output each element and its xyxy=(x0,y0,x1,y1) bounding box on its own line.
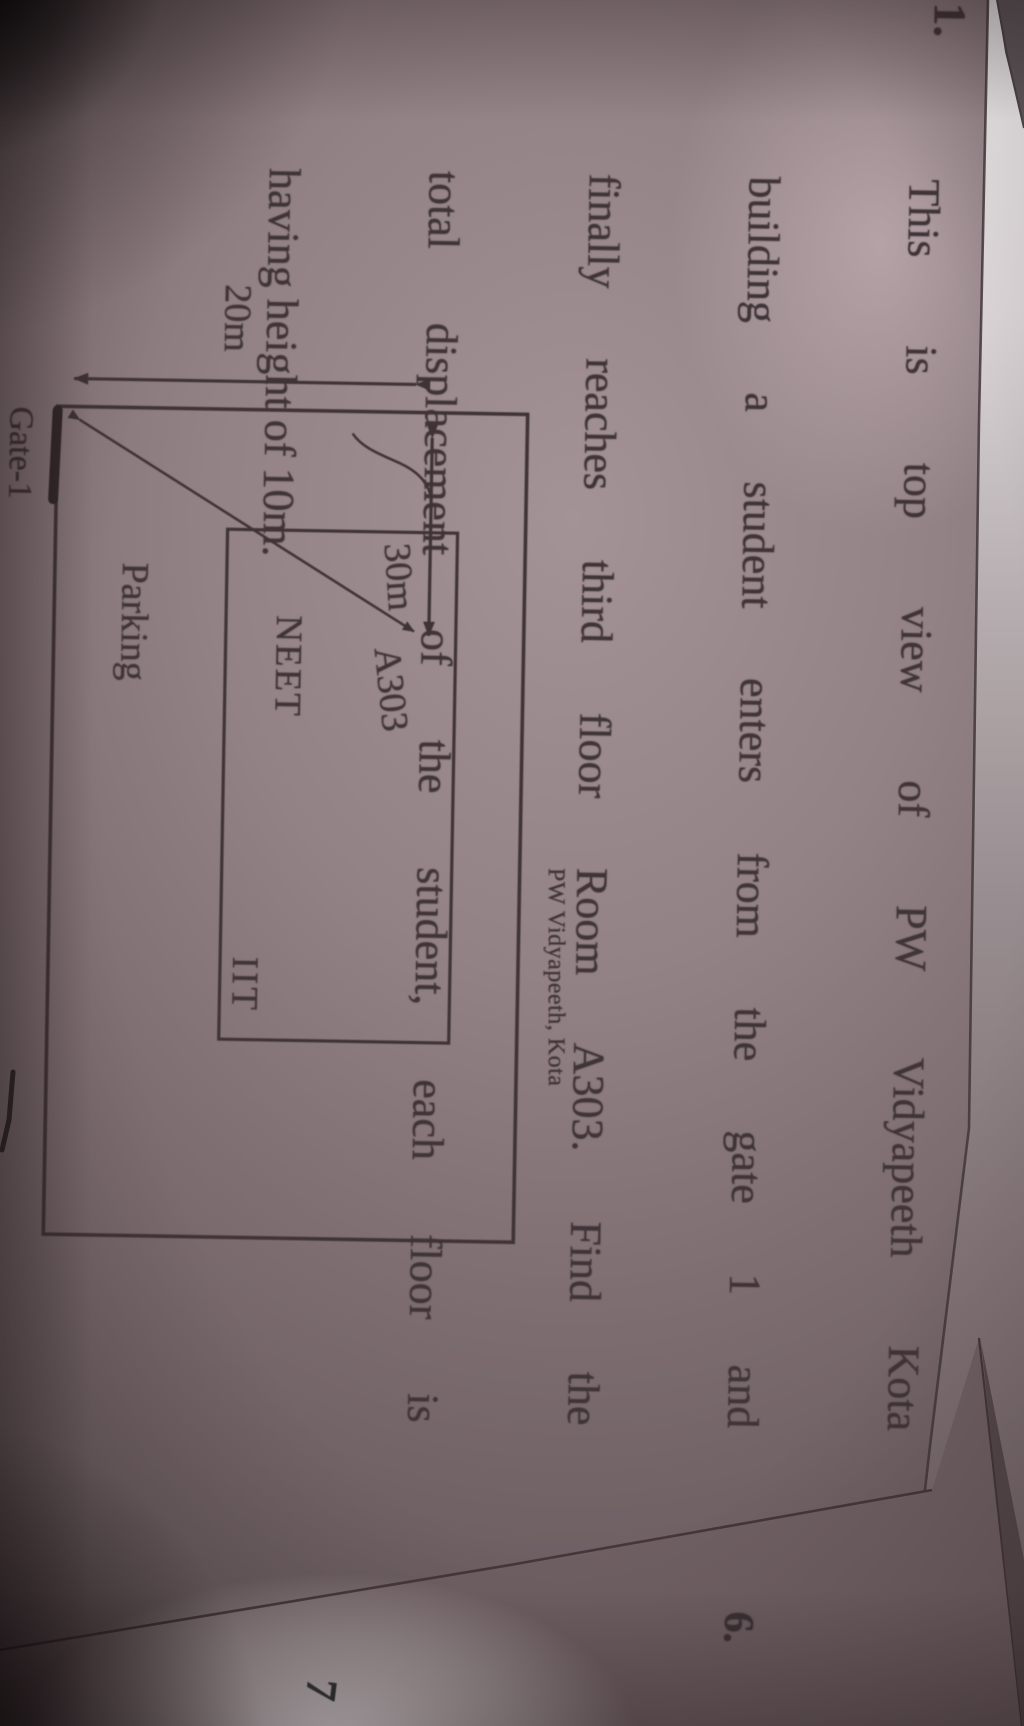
room-label-neet: NEET xyxy=(265,615,310,718)
dim-label-20m: 20m xyxy=(215,284,260,352)
next-question-number: 6. xyxy=(713,1611,762,1643)
rotated-page-content: 1. This is top view of PW Vidyapeeth Kot… xyxy=(0,0,1023,1724)
dim-arrow-20m xyxy=(74,378,416,384)
gate-mark xyxy=(53,410,58,499)
room-label-iit: IIT xyxy=(222,956,266,1013)
campus-diagram xyxy=(0,0,1023,1724)
area-label-parking: Parking xyxy=(111,562,157,681)
photo-of-textbook-page: 1. This is top view of PW Vidyapeeth Kot… xyxy=(0,0,1024,1726)
gate-label: Gate-1 xyxy=(0,406,40,499)
curve-mark-icon xyxy=(352,434,431,493)
dim-arrow-30m xyxy=(429,438,432,636)
dim-label-30m: 30m xyxy=(374,542,423,612)
room-label-a303: A303 xyxy=(365,645,418,734)
